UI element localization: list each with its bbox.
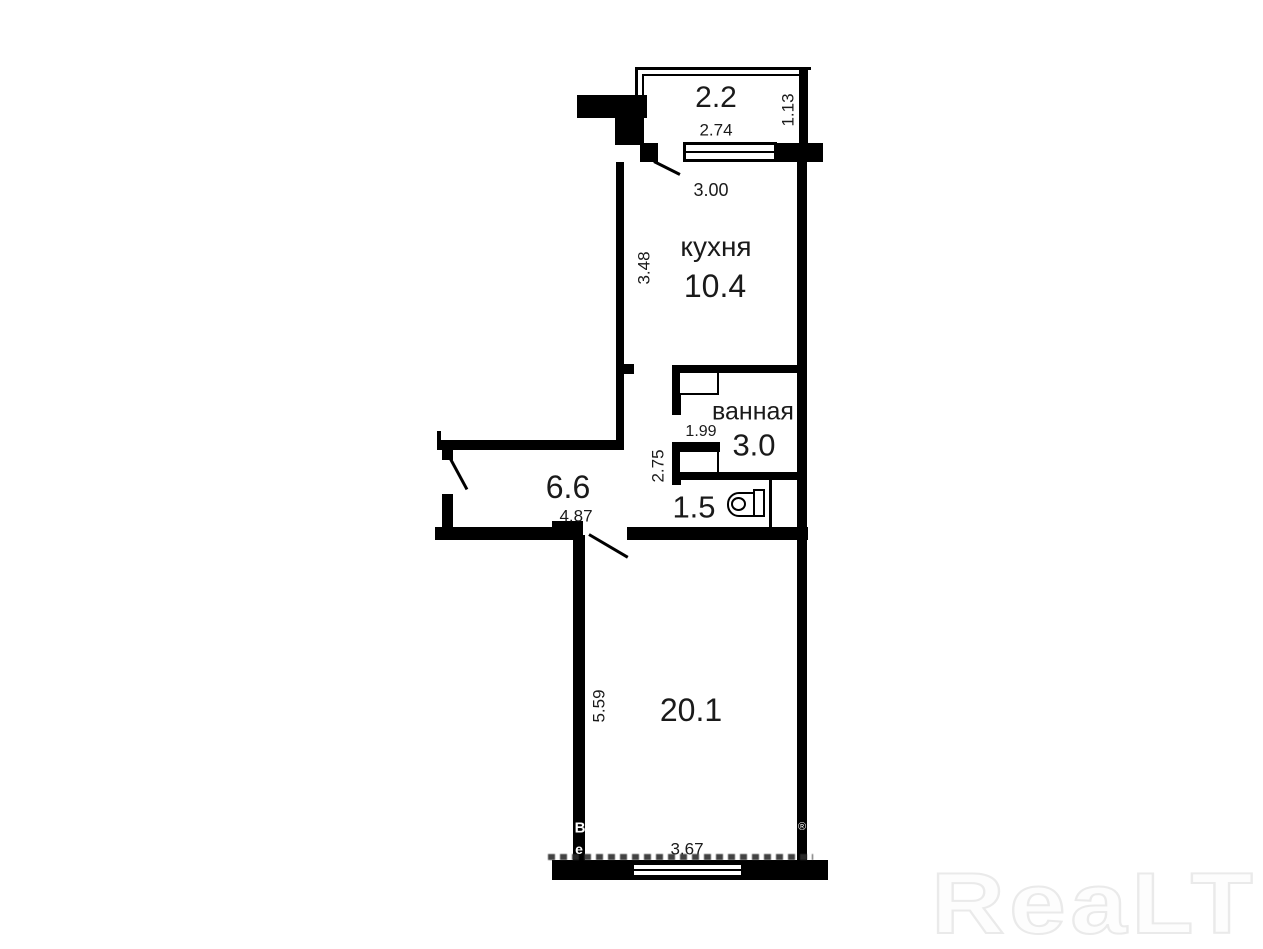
kitchen-area-label: 10.4	[684, 270, 746, 302]
toilet-bowl-inner-circle	[731, 497, 746, 511]
toilet-top-wall	[672, 472, 802, 480]
living-room-area-label: 20.1	[660, 694, 722, 726]
kitchen-left-wall	[616, 162, 624, 450]
bathroom-area-label: 3.0	[732, 430, 775, 461]
toilet-door-leaf	[678, 450, 719, 474]
right-exterior-wall	[797, 143, 807, 880]
living-room-height-label: 5.59	[591, 689, 608, 722]
balcony-right-wall	[799, 67, 808, 145]
kitchen-top-wall-step	[640, 143, 658, 162]
kitchen-window-glass-line	[686, 151, 774, 153]
bathroom-corridor-height-label: 2.75	[650, 449, 667, 482]
bathroom-name-label: ванная	[712, 400, 794, 425]
balcony-inner-top-line	[642, 74, 808, 76]
bathroom-door-leaf	[678, 371, 719, 395]
hallway-area-label: 6.6	[546, 471, 590, 503]
watermark-registered-symbol: ®	[798, 821, 806, 833]
living-room-door-swing-line	[588, 533, 628, 558]
balcony-width-label: 2.74	[699, 122, 732, 139]
floor-plan: 2.2 2.74 1.13 3.00 кухня 10.4 3.48 ванна…	[0, 0, 1263, 949]
toilet-tank	[753, 489, 765, 517]
exterior-wall-top-left-vert	[615, 95, 642, 145]
watermark-fragment-b: B	[575, 820, 586, 837]
living-room-left-wall	[573, 535, 585, 862]
balcony-depth-label: 1.13	[780, 93, 797, 126]
watermark-fragment-e: e	[575, 841, 583, 857]
vent-shaft-divider-line	[769, 480, 772, 528]
toilet-area-label: 1.5	[672, 492, 715, 523]
kitchen-name-label: кухня	[680, 233, 751, 261]
entrance-door-swing-line	[446, 452, 469, 490]
bathroom-width-label: 1.99	[685, 424, 716, 440]
living-room-window	[632, 863, 743, 877]
kitchen-height-label: 3.48	[636, 251, 653, 284]
watermark-text-strip	[548, 854, 813, 860]
balcony-area-label: 2.2	[695, 83, 737, 113]
realt-logo-watermark: ReaLT	[931, 859, 1257, 949]
kitchen-window	[683, 142, 777, 162]
balcony-door-swing-line	[653, 160, 680, 176]
hallway-bottom-wall-right	[627, 527, 808, 540]
hallway-top-wall	[437, 440, 624, 450]
kitchen-door-width-label: 3.00	[693, 181, 728, 199]
hallway-width-label: 4.87	[559, 508, 592, 525]
balcony-outer-top-line	[635, 67, 811, 70]
kitchen-left-wall-nub	[616, 364, 634, 374]
hallway-top-wall-tick	[437, 431, 441, 440]
living-room-window-glass-line	[634, 869, 741, 871]
